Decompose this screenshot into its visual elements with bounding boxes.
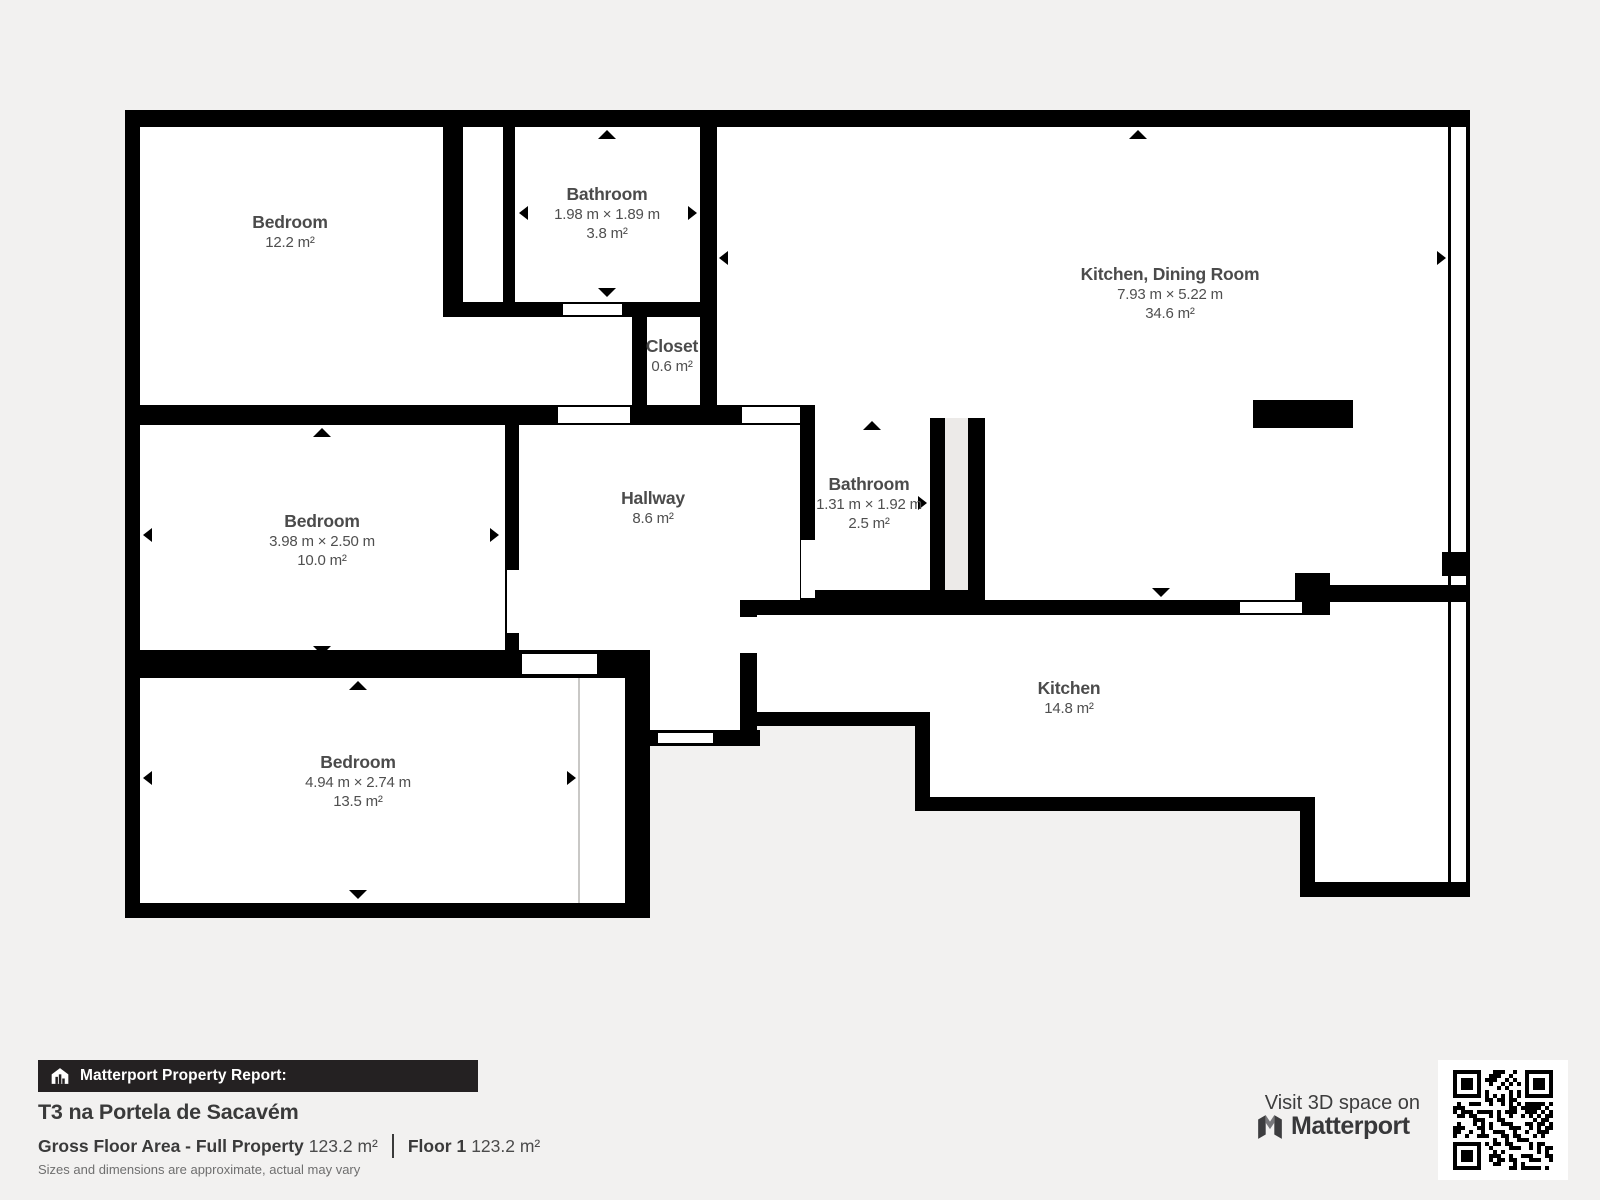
- measure-arrow-left: [719, 251, 728, 265]
- room-dims: 3.98 m × 2.50 m: [192, 532, 452, 551]
- wall-segment: [443, 127, 463, 303]
- room-area: 14.8 m²: [939, 699, 1199, 718]
- wall-left: [125, 110, 140, 918]
- room-name: Closet: [542, 336, 802, 357]
- measure-arrow-down: [598, 288, 616, 297]
- door-opening: [1240, 602, 1302, 613]
- measure-arrow-left: [143, 771, 152, 785]
- room-label-bedroom-bl: Bedroom 4.94 m × 2.74 m 13.5 m²: [228, 752, 488, 811]
- measure-arrow-up: [1129, 130, 1147, 139]
- wall-segment: [1442, 552, 1470, 576]
- matterport-wordmark: Matterport: [1291, 1112, 1410, 1141]
- room-label-bathroom-tl: Bathroom 1.98 m × 1.89 m 3.8 m²: [477, 184, 737, 243]
- gfa-label: Gross Floor Area - Full Property: [38, 1136, 304, 1157]
- room-area: 2.5 m²: [739, 514, 999, 533]
- measure-arrow-left: [143, 528, 152, 542]
- property-title: T3 na Portela de Sacavém: [38, 1100, 299, 1125]
- room-area: 34.6 m²: [1040, 304, 1300, 323]
- wall-segment: [740, 712, 930, 726]
- measure-arrow-down: [1152, 588, 1170, 597]
- door-opening-entry: [658, 733, 713, 743]
- wall-segment: [625, 650, 650, 918]
- window-wall-upper: [1448, 127, 1470, 552]
- measure-arrow-right: [490, 528, 499, 542]
- room-fill-entry-passage: [640, 660, 740, 730]
- floor-plan: Bedroom 12.2 m² Bathroom 1.98 m × 1.89 m…: [0, 0, 1600, 1200]
- room-area: 3.8 m²: [477, 224, 737, 243]
- room-label-kitchen: Kitchen 14.8 m²: [939, 678, 1199, 718]
- measure-arrow-down: [863, 592, 881, 601]
- report-banner-label: Matterport Property Report:: [80, 1067, 287, 1085]
- room-fill-bedroom-tl: [140, 127, 443, 407]
- measure-arrow-down: [313, 646, 331, 655]
- room-name: Kitchen, Dining Room: [1040, 264, 1300, 285]
- door-opening: [742, 407, 800, 423]
- floor-value: 123.2 m²: [471, 1136, 540, 1157]
- wall-top: [125, 110, 1470, 127]
- wall-segment: [915, 712, 930, 809]
- matterport-logo-icon: [1256, 1113, 1284, 1141]
- room-dims: 1.98 m × 1.89 m: [477, 205, 737, 224]
- closet-partition-line: [578, 678, 580, 903]
- counter-block: [1253, 400, 1353, 428]
- room-name: Bedroom: [228, 752, 488, 773]
- wall-segment: [800, 590, 985, 612]
- matterport-logo: Matterport: [1256, 1112, 1410, 1141]
- wall-segment: [1330, 585, 1470, 602]
- measure-arrow-right: [1437, 251, 1446, 265]
- measure-arrow-up: [863, 421, 881, 430]
- disclaimer-text: Sizes and dimensions are approximate, ac…: [38, 1162, 360, 1177]
- measure-arrow-up: [313, 428, 331, 437]
- room-name: Bedroom: [160, 212, 420, 233]
- report-banner: Matterport Property Report:: [38, 1060, 478, 1092]
- measure-arrow-down: [349, 890, 367, 899]
- wall-bottom-left: [125, 903, 640, 918]
- room-area: 10.0 m²: [192, 551, 452, 570]
- wall-segment: [700, 110, 717, 425]
- room-label-bedroom-ml: Bedroom 3.98 m × 2.50 m 10.0 m²: [192, 511, 452, 570]
- room-name: Bedroom: [192, 511, 452, 532]
- room-label-bedroom-tl: Bedroom 12.2 m²: [160, 212, 420, 252]
- door-opening: [558, 407, 630, 423]
- door-opening: [801, 540, 815, 598]
- wall-segment: [1300, 882, 1470, 897]
- wall-segment: [1300, 797, 1315, 894]
- measure-arrow-right: [567, 771, 576, 785]
- room-label-kitchen-dining: Kitchen, Dining Room 7.93 m × 5.22 m 34.…: [1040, 264, 1300, 323]
- room-dims: 1.31 m × 1.92 m: [739, 495, 999, 514]
- room-area: 0.6 m²: [542, 357, 802, 376]
- door-opening: [563, 304, 622, 315]
- room-dims: 7.93 m × 5.22 m: [1040, 285, 1300, 304]
- room-dims: 4.94 m × 2.74 m: [228, 773, 488, 792]
- door-opening: [522, 654, 597, 674]
- room-area: 13.5 m²: [228, 792, 488, 811]
- room-label-closet: Closet 0.6 m²: [542, 336, 802, 376]
- measure-arrow-up: [598, 130, 616, 139]
- room-fill-kitchen-c: [1315, 602, 1450, 882]
- measure-arrow-up: [349, 681, 367, 690]
- gfa-value: 123.2 m²: [309, 1136, 378, 1157]
- stats-divider: [392, 1134, 394, 1158]
- room-area: 12.2 m²: [160, 233, 420, 252]
- room-name: Bathroom: [477, 184, 737, 205]
- door-opening: [740, 617, 757, 653]
- house-report-icon: [50, 1066, 70, 1086]
- area-stats: Gross Floor Area - Full Property 123.2 m…: [38, 1134, 540, 1158]
- wall-segment: [915, 797, 1315, 811]
- window-wall-lower: [1448, 576, 1470, 882]
- room-name: Bathroom: [739, 474, 999, 495]
- room-label-bathroom-m: Bathroom 1.31 m × 1.92 m 2.5 m²: [739, 474, 999, 533]
- qr-code: [1438, 1060, 1568, 1180]
- floor-label: Floor 1: [408, 1136, 466, 1157]
- room-name: Kitchen: [939, 678, 1199, 699]
- door-opening: [507, 570, 519, 633]
